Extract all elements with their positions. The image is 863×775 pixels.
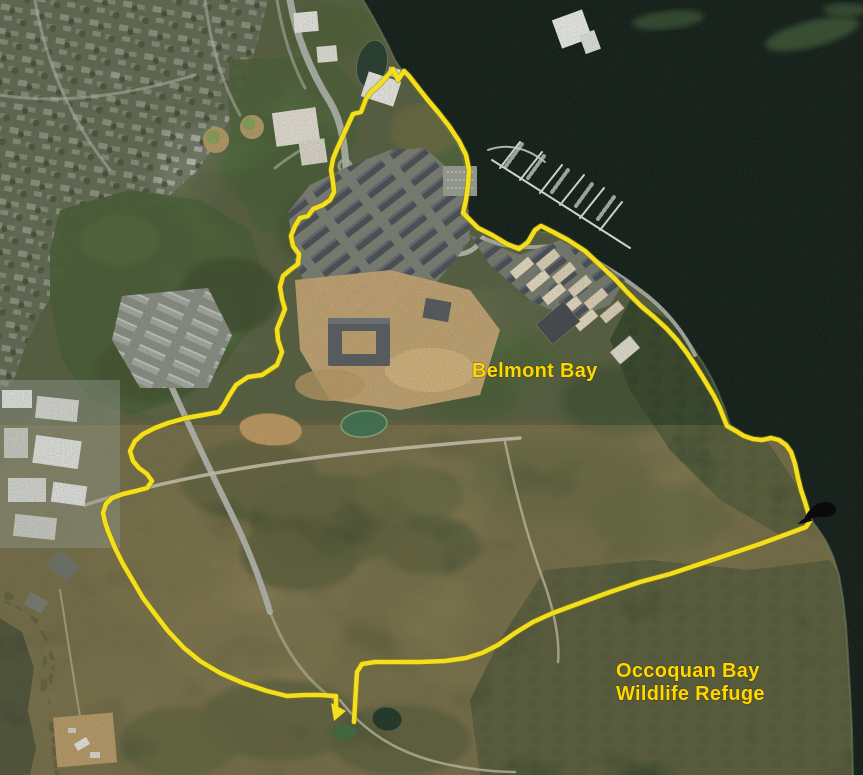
satellite-map[interactable]: Belmont Bay Occoquan Bay Wildlife Refuge [0, 0, 863, 775]
refuge-label-line1: Occoquan Bay [616, 660, 760, 682]
belmont-bay-label: Belmont Bay [472, 360, 598, 382]
refuge-label-line2: Wildlife Refuge [616, 683, 765, 705]
